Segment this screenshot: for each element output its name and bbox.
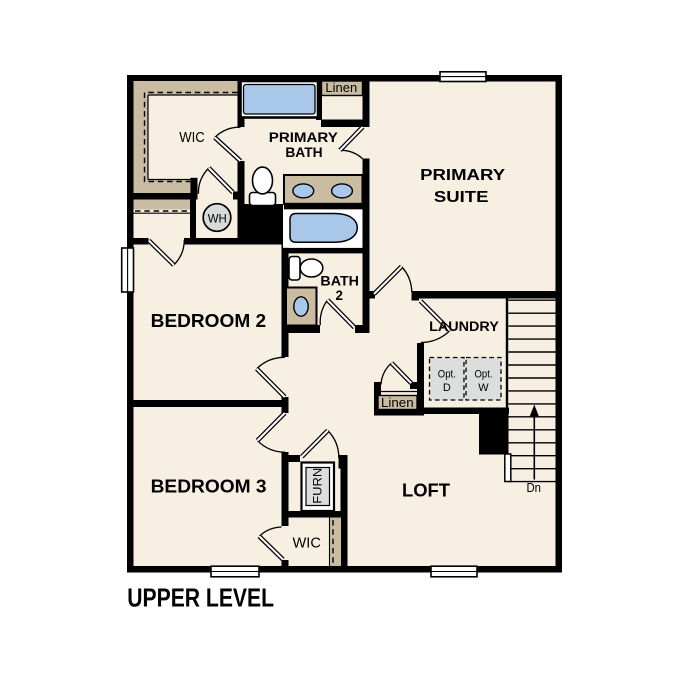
svg-text:BATH: BATH xyxy=(285,145,322,160)
svg-text:BEDROOM 2: BEDROOM 2 xyxy=(151,310,266,331)
svg-text:2: 2 xyxy=(335,288,342,303)
svg-text:BEDROOM 3: BEDROOM 3 xyxy=(151,476,267,497)
svg-text:Linen: Linen xyxy=(325,81,357,95)
svg-text:Dn: Dn xyxy=(526,481,541,495)
svg-text:Opt.: Opt. xyxy=(475,369,493,381)
svg-text:UPPER LEVEL: UPPER LEVEL xyxy=(127,582,274,612)
svg-text:PRIMARY: PRIMARY xyxy=(420,167,506,184)
svg-text:LOFT: LOFT xyxy=(402,479,451,500)
svg-text:Linen: Linen xyxy=(381,395,414,410)
svg-text:D: D xyxy=(443,382,451,394)
svg-text:Opt.: Opt. xyxy=(438,369,456,381)
svg-text:BATH: BATH xyxy=(320,274,359,289)
svg-text:PRIMARY: PRIMARY xyxy=(269,130,338,145)
svg-text:WIC: WIC xyxy=(293,536,321,552)
svg-text:WH: WH xyxy=(208,211,227,225)
svg-text:WIC: WIC xyxy=(179,130,205,146)
svg-text:SUITE: SUITE xyxy=(434,189,489,206)
svg-text:FURN: FURN xyxy=(312,468,324,504)
svg-text:LAUNDRY: LAUNDRY xyxy=(429,319,499,334)
svg-text:W: W xyxy=(478,382,489,394)
